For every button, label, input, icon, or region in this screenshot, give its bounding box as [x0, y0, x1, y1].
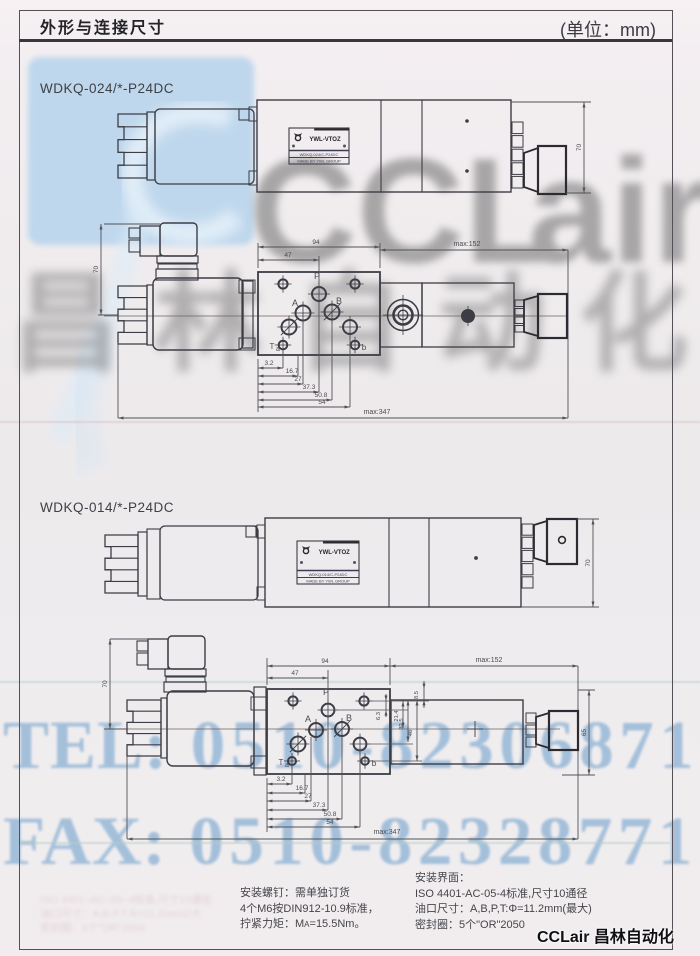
svg-text:YWL-VTOZ: YWL-VTOZ — [319, 550, 351, 556]
svg-text:b: b — [372, 759, 377, 768]
svg-text:46: 46 — [408, 730, 414, 736]
svg-text:A: A — [292, 298, 298, 308]
svg-text:70: 70 — [102, 680, 109, 688]
svg-text:max:347: max:347 — [374, 829, 401, 836]
svg-text:47: 47 — [284, 252, 292, 259]
svg-text:54: 54 — [318, 399, 326, 406]
svg-text:32.5: 32.5 — [399, 718, 405, 729]
svg-text:27: 27 — [304, 793, 312, 800]
svg-text:T: T — [270, 342, 275, 351]
svg-text:max:152: max:152 — [454, 241, 481, 248]
svg-text:3.2: 3.2 — [264, 360, 273, 367]
svg-text:max:152: max:152 — [476, 657, 503, 664]
svg-text:54: 54 — [326, 819, 334, 826]
svg-text:70: 70 — [576, 144, 583, 152]
svg-text:70: 70 — [93, 266, 100, 274]
svg-text:50.8: 50.8 — [324, 811, 337, 818]
svg-text:37.3: 37.3 — [313, 802, 326, 809]
svg-text:47: 47 — [291, 670, 299, 677]
svg-text:max:347: max:347 — [364, 409, 391, 416]
svg-text:B: B — [346, 713, 352, 723]
svg-text:MADE BY YWL GROUP: MADE BY YWL GROUP — [306, 579, 350, 584]
svg-text:b: b — [362, 343, 367, 352]
svg-text:37.3: 37.3 — [303, 384, 316, 391]
svg-text:16.7: 16.7 — [296, 785, 309, 792]
svg-text:8.5: 8.5 — [414, 691, 420, 699]
svg-text:a: a — [276, 346, 280, 353]
svg-text:65: 65 — [581, 729, 588, 737]
svg-text:WDKQ-014/C-P24DC: WDKQ-014/C-P24DC — [309, 572, 348, 577]
svg-text:B: B — [336, 296, 342, 306]
svg-text:16.7: 16.7 — [286, 368, 299, 375]
svg-text:94: 94 — [321, 658, 329, 665]
svg-text:70: 70 — [585, 559, 592, 567]
svg-text:3.2: 3.2 — [276, 776, 285, 783]
svg-text:6.3: 6.3 — [376, 712, 382, 720]
svg-text:A: A — [305, 714, 311, 724]
svg-text:YWL-VTOZ: YWL-VTOZ — [309, 137, 341, 143]
svg-text:50.8: 50.8 — [315, 392, 328, 399]
svg-text:27: 27 — [294, 376, 302, 383]
svg-text:MADE BY YWL GROUP: MADE BY YWL GROUP — [297, 159, 341, 164]
svg-text:94: 94 — [312, 239, 320, 246]
svg-text:T: T — [279, 758, 284, 767]
svg-text:a: a — [285, 762, 289, 769]
svg-text:WDKQ-024/C-P24DC: WDKQ-024/C-P24DC — [300, 152, 339, 157]
